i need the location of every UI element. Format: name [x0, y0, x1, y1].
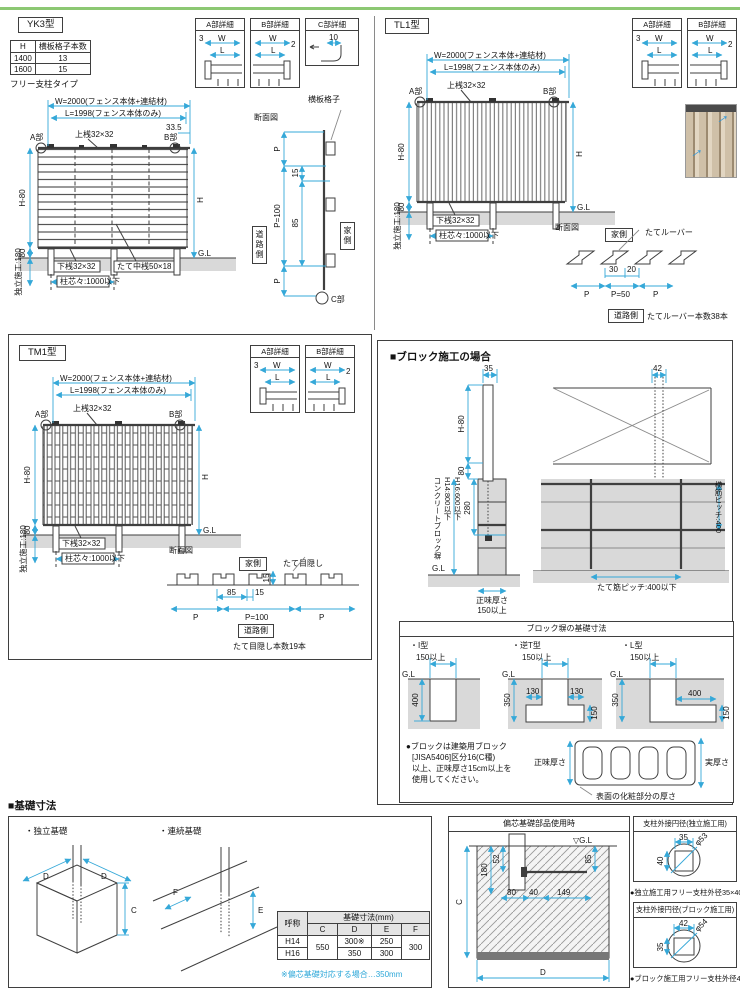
circum-box-block: 支柱外接円径(ブロック施工用) φ54 42 35	[633, 902, 737, 968]
actual-thickness: 実厚さ	[705, 757, 729, 767]
l-type-label: ・L型	[622, 641, 642, 650]
detail-a-drawing: 3 W L	[196, 31, 244, 87]
detail-a-drawing: 3 W L	[633, 31, 681, 87]
cell: D	[338, 924, 372, 936]
tl1-section-title: 断面図	[555, 222, 579, 233]
dim-w-label: W=2000(フェンス本体+連結材)	[60, 373, 172, 383]
t-150: 150	[590, 706, 599, 720]
dim-l-label: L=1998(フェンス本体のみ)	[444, 62, 540, 72]
t-350: 350	[503, 693, 512, 707]
l-width: 150以上	[630, 653, 659, 662]
cell: 300	[372, 948, 402, 960]
detail-b-title: B部詳細	[306, 346, 354, 358]
tl1-title: TL1型	[385, 18, 429, 34]
gl-label: G.L	[432, 564, 445, 573]
tm1-slat-count: たて目隠し本数19本	[233, 641, 306, 652]
airflow-arrow-icon: →	[684, 140, 707, 164]
column-divider	[374, 16, 375, 330]
dim-3: 3	[636, 34, 641, 43]
p-top: P	[273, 146, 282, 151]
p-right: P	[319, 613, 324, 622]
dim-top: 35	[679, 833, 688, 842]
tm1-road-side-label: 道路側	[238, 624, 274, 638]
post-pitch-label: 柱芯々:1000以下	[65, 553, 125, 563]
i-width: 150以上	[416, 653, 445, 662]
dim-280: 280	[463, 501, 472, 515]
table-row: 140013	[11, 53, 91, 64]
foundation-diagrams: ・I型 150以上 G.L 400 ・逆T型 150以上 G.L 130 130	[400, 637, 733, 801]
cell: 横板格子本数	[35, 41, 90, 53]
gl-label: ▽G.L	[573, 836, 593, 845]
dim-w: W	[706, 34, 714, 43]
top-rail-label: 上桟32×32	[73, 403, 112, 413]
detail-c-drawing: 10	[306, 31, 358, 65]
bottom-rail-label: 下桟32×32	[62, 538, 101, 548]
detail-b-title: B部詳細	[688, 19, 736, 31]
block-front-view: 42 たて筋ピッチ:400以下	[533, 363, 733, 621]
cell: 350	[338, 948, 372, 960]
detail-c-title: C部詳細	[306, 19, 358, 31]
dim-2: 2	[728, 40, 733, 49]
install-label: 独立施工:180	[392, 202, 402, 250]
dim-l: L	[657, 46, 662, 55]
l-gl: G.L	[610, 670, 623, 679]
dim-w: W	[273, 361, 281, 370]
tl1-road-side-label: 道路側	[608, 309, 644, 323]
dim-l: L	[275, 373, 280, 382]
block-note-line1: ●ブロックは建築用ブロック	[406, 741, 507, 751]
circum2-note: ●ブロック施工用フリー支柱外径42×35	[630, 974, 740, 984]
dim-w-label: W=2000(フェンス本体+連結材)	[55, 96, 167, 106]
independent-foundation-label: ・独立基礎	[25, 825, 68, 837]
detail-a-drawing: 3 W L	[251, 358, 299, 412]
detail-b-title: B部詳細	[251, 19, 299, 31]
p-mid: P=50	[611, 290, 630, 299]
cell: 1400	[11, 53, 36, 64]
p-right: P	[653, 290, 658, 299]
dim-52: 52	[492, 854, 501, 863]
yk3-road-side-label: 道路側	[252, 226, 267, 264]
top-rail-label: 上桟32×32	[447, 80, 486, 90]
foundation-box: ・独立基礎 ・連続基礎 D D C F E 呼称基礎寸法(mm) CDEF H1…	[8, 816, 432, 988]
cell: H	[11, 41, 36, 53]
dim-l: L	[220, 46, 225, 55]
dim-3: 3	[199, 34, 204, 43]
dim-15b: 15	[255, 588, 264, 597]
dim-h80: H-80	[457, 415, 466, 433]
part-a-label: A部	[30, 132, 43, 142]
i-gl: G.L	[402, 670, 415, 679]
cell: E	[372, 924, 402, 936]
dim-l: L	[708, 46, 713, 55]
p-left: P	[584, 290, 589, 299]
tm1-section-title: 断面図	[169, 545, 193, 556]
post-pitch-label: 柱芯々:1000以下	[439, 230, 499, 240]
tm1-detail-a: A部詳細 3 W L	[250, 345, 300, 413]
dim-15: 15	[291, 168, 300, 177]
eccentric-title: 偏芯基礎部品使用時	[449, 817, 629, 832]
block-title: ■ブロック施工の場合	[390, 349, 491, 364]
eccentric-note: ※偏芯基礎対応する場合…350mm	[281, 969, 402, 980]
t-130-right: 130	[570, 687, 584, 696]
tl1-louver-count: たてルーバー本数38本	[647, 311, 728, 322]
t-130-left: 130	[526, 687, 540, 696]
i-type-label: ・I型	[410, 641, 428, 650]
block-foundation-box: ブロック塀の基礎寸法 ・I型 150以上 G.L 400 ・逆T型 150以上 …	[399, 621, 734, 803]
table-row: 160015	[11, 64, 91, 75]
yk3-detail-b: B部詳細 W 2 L	[250, 18, 300, 88]
install-label: 独立施工:180	[13, 248, 23, 296]
yk3-front-view: W=2000(フェンス本体+連結材) L=1998(フェンス本体のみ) 33.5…	[18, 96, 250, 314]
net-thickness: 正味厚さ	[534, 757, 566, 767]
dim-80: 80	[457, 466, 466, 475]
circum2-title: 支柱外接円径(ブロック施工用)	[634, 903, 736, 918]
block-note-line3: 以上、正味厚さ15cm以上を	[412, 763, 512, 773]
cell: 300※	[338, 936, 372, 948]
dim-w: W	[269, 34, 277, 43]
i-depth: 400	[411, 693, 420, 707]
detail-a-title: A部詳細	[196, 19, 244, 31]
block-note-line2: [JISA5406]区分16(C種)	[412, 752, 495, 762]
dim-diameter: φ54	[693, 917, 710, 934]
cell: C	[308, 924, 338, 936]
cell: 呼称	[278, 912, 308, 936]
dim-h-label: H	[201, 474, 210, 480]
dim-149: 149	[557, 888, 571, 897]
yk3-detail-c: C部詳細 10	[305, 18, 359, 66]
l-150: 150	[722, 706, 731, 720]
cell: 300	[402, 936, 430, 960]
p-mid: P=100	[273, 204, 282, 228]
tm1-title: TM1型	[19, 345, 66, 361]
circum1-drawing: φ53 35 40	[634, 832, 736, 882]
dim-d2: D	[101, 872, 107, 881]
foundation-title: ■基礎寸法	[8, 798, 56, 813]
tl1-front-view: W=2000(フェンス本体+連結材) L=1998(フェンス本体のみ) A部 B…	[397, 50, 629, 268]
dim-w: W	[324, 361, 332, 370]
page-top-rule	[0, 7, 740, 10]
section-title: 断面図	[254, 112, 278, 122]
yk3-spec-table: H横板格子本数 140013 160015	[10, 40, 91, 75]
yoko-pitch-label: 横筋ピッチ:400	[714, 481, 723, 533]
tl1-3d-illustration: → →	[685, 104, 737, 178]
section-yk3: YK3型 H横板格子本数 140013 160015 フリー支柱タイプ W=20…	[8, 16, 368, 332]
cell: 15	[35, 64, 90, 75]
yk3-cross-section: 断面図 P P=100 P 15 85 C部	[246, 108, 370, 322]
dim-h-label: H	[196, 197, 205, 203]
cell: H16	[278, 948, 308, 960]
circum-box-independent: 支柱外接円径(独立施工用) φ53 35 40	[633, 816, 737, 882]
yk3-title: YK3型	[18, 17, 63, 33]
t-type-label: ・逆T型	[512, 640, 541, 650]
dim-f: F	[173, 888, 178, 897]
dim-d: D	[540, 968, 546, 977]
dim-3: 3	[254, 361, 259, 370]
section-tm1: TM1型 W=2000(フェンス本体+連結材) L=1998(フェンス本体のみ)…	[8, 334, 372, 660]
detail-b-drawing: W 2 L	[306, 358, 354, 412]
dim-180: 180	[480, 863, 489, 877]
dim-h80-label: H-80	[18, 189, 27, 207]
dim-85: 85	[584, 854, 593, 863]
tl1-louver-label: たてルーバー	[645, 227, 693, 238]
mid-rail-label: たて中桟50×18	[117, 261, 172, 271]
dim-35: 35	[484, 364, 493, 373]
dim-left: 35	[656, 942, 665, 951]
surface-thickness: 表面の化粧部分の厚さ	[596, 791, 676, 801]
cell: 550	[308, 936, 338, 960]
l-400: 400	[688, 689, 702, 698]
dim-w: W	[218, 34, 226, 43]
dim-h-label: H	[575, 151, 584, 157]
foundation-box-title: ブロック塀の基礎寸法	[400, 622, 733, 637]
dim-d1: D	[43, 872, 49, 881]
eccentric-drawing: ▽G.L 85 52 180 C 80 40 149 D	[449, 832, 629, 986]
tl1-cross-section: 30 20 P P=50 P	[557, 242, 733, 304]
table-row: H14550300※250300	[278, 936, 430, 948]
dim-c: C	[455, 899, 464, 905]
dim-h80-label: H-80	[23, 466, 32, 484]
t-gl: G.L	[502, 670, 515, 679]
net-thickness-value: 150以上	[477, 606, 506, 615]
dim-top: 42	[679, 919, 688, 928]
part-b-label: B部	[169, 409, 182, 419]
cell: 13	[35, 53, 90, 64]
dim-85: 85	[227, 588, 236, 597]
dim-l: L	[271, 46, 276, 55]
block-note-line4: 使用してください。	[412, 774, 484, 784]
tm1-front-view: W=2000(フェンス本体+連結材) L=1998(フェンス本体のみ) A部 B…	[23, 373, 255, 591]
section-tl1: TL1型 W=2000(フェンス本体+連結材) L=1998(フェンス本体のみ)…	[377, 16, 733, 332]
yk3-detail-a: A部詳細 3 W L	[195, 18, 245, 88]
table-row: 呼称基礎寸法(mm)	[278, 912, 430, 924]
cell: 250	[372, 936, 402, 948]
part-a-label: A部	[35, 409, 48, 419]
tl1-detail-a: A部詳細 3 W L	[632, 18, 682, 88]
tm1-detail-b: B部詳細 W 2 L	[305, 345, 355, 413]
circum1-title: 支柱外接円径(独立施工用)	[634, 817, 736, 832]
top-rail-label: 上桟32×32	[75, 129, 114, 139]
tate-pitch-label: たて筋ピッチ:400以下	[597, 582, 677, 592]
dim-h80-label: H-80	[397, 143, 406, 161]
dim-e: E	[258, 906, 263, 915]
bottom-rail-label: 下桟32×32	[57, 261, 96, 271]
circum1-note: ●独立施工用フリー支柱外径35×40	[630, 888, 740, 898]
dim-40: 40	[529, 888, 538, 897]
net-thickness-label: 正味厚さ	[476, 595, 508, 605]
cell: F	[402, 924, 430, 936]
yk3-house-side-label: 家側	[340, 222, 355, 250]
cell: 1600	[11, 64, 36, 75]
dim-85: 85	[291, 218, 300, 227]
dim-2: 2	[291, 40, 296, 49]
continuous-foundation-label: ・連続基礎	[159, 825, 202, 837]
dim-diameter: φ53	[693, 831, 710, 848]
dim-left: 40	[656, 856, 665, 865]
gl-label: G.L	[577, 203, 590, 212]
section-block: ■ブロック施工の場合 コンクリートブロック塀 H14:800以下 H16:600…	[377, 340, 733, 805]
dim-w-label: W=2000(フェンス本体+連結材)	[434, 50, 546, 60]
detail-b-drawing: W 2 L	[688, 31, 736, 87]
dim-335-label: 33.5	[166, 123, 182, 132]
table-row: H横板格子本数	[11, 41, 91, 53]
yk3-board-label: 横板格子	[308, 94, 340, 105]
dim-2: 2	[346, 367, 351, 376]
dim-42: 42	[653, 364, 662, 373]
yk3-type-label: フリー支柱タイプ	[10, 78, 78, 90]
foundation-table: 呼称基礎寸法(mm) CDEF H14550300※250300 H163503…	[277, 911, 430, 960]
dim-20: 20	[627, 265, 636, 274]
dim-80: 80	[507, 888, 516, 897]
detail-a-title: A部詳細	[633, 19, 681, 31]
tl1-detail-b: B部詳細 W 2 L	[687, 18, 737, 88]
dim-l-label: L=1998(フェンス本体のみ)	[70, 385, 166, 395]
detail-a-title: A部詳細	[251, 346, 299, 358]
detail-b-drawing: W 2 L	[251, 31, 299, 87]
post-pitch-label: 柱芯々:1000以下	[60, 276, 120, 286]
foundation-drawings: D D C F E	[15, 841, 285, 983]
part-a-label: A部	[409, 86, 422, 96]
p-mid: P=100	[245, 613, 269, 622]
dim-15: 15	[262, 573, 271, 582]
part-c-label: C部	[331, 294, 345, 304]
dim-w: W	[655, 34, 663, 43]
cell: 基礎寸法(mm)	[308, 912, 430, 924]
part-b-label: B部	[543, 86, 556, 96]
bottom-rail-label: 下桟32×32	[436, 215, 475, 225]
dim-10: 10	[329, 33, 338, 42]
part-b-label: B部	[164, 132, 177, 142]
eccentric-box: 偏芯基礎部品使用時 ▽G.L 85 52 180 C 80 40 149 D	[448, 816, 630, 988]
dim-l-label: L=1998(フェンス本体のみ)	[65, 108, 161, 118]
circum2-drawing: φ54 42 35	[634, 918, 736, 968]
dim-l: L	[326, 373, 331, 382]
dim-30: 30	[609, 265, 618, 274]
dim-c: C	[131, 906, 137, 915]
tm1-cross-section: 15 85 15 P P=100 P	[159, 563, 369, 623]
gl-label: G.L	[203, 526, 216, 535]
gl-label: G.L	[198, 249, 211, 258]
t-width: 150以上	[522, 653, 551, 662]
cell: H14	[278, 936, 308, 948]
p-bot: P	[273, 278, 282, 283]
l-350: 350	[611, 693, 620, 707]
install-label: 独立施工:180	[18, 525, 28, 573]
p-left: P	[193, 613, 198, 622]
louver-top-cap	[686, 105, 736, 112]
